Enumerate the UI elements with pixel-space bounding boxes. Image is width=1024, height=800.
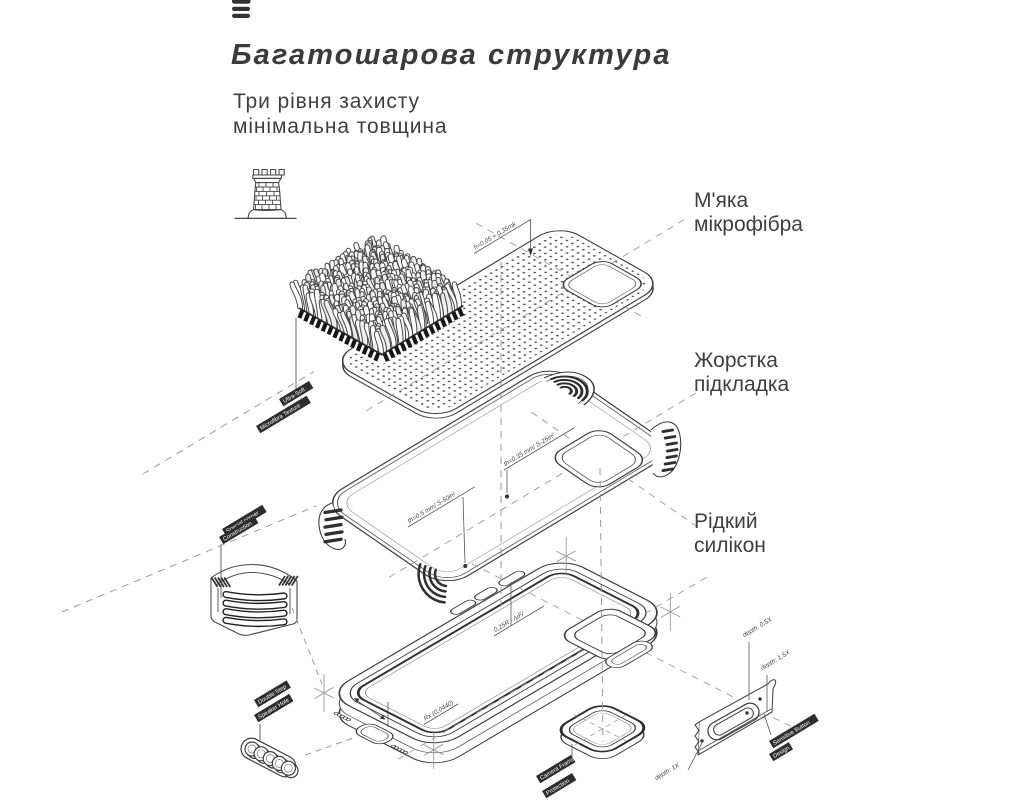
svg-text:depth: 1,5X: depth: 1,5X — [760, 649, 792, 672]
svg-text:depth: 0,5X: depth: 0,5X — [742, 616, 774, 639]
svg-text:Microfibra Texture: Microfibra Texture — [259, 403, 301, 432]
svg-text:depth: 1X: depth: 1X — [654, 762, 682, 782]
svg-text:Sensitive Button: Sensitive Button — [772, 720, 811, 747]
